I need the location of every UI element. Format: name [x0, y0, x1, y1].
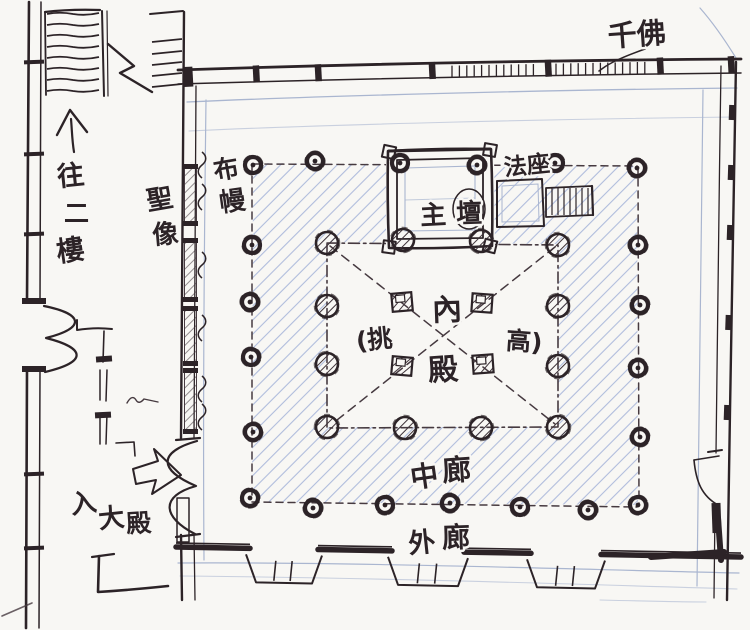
column-core [398, 161, 403, 166]
label-dharma-seat: 法座 [503, 150, 552, 182]
stair-tread [152, 84, 182, 87]
column [316, 353, 338, 375]
statue-niche [185, 242, 197, 298]
wall-post [545, 60, 552, 77]
stair-tread [152, 51, 182, 54]
column [316, 232, 338, 254]
column-core [636, 503, 641, 508]
stair-tread [47, 90, 99, 92]
label-main-altar: 壇 [456, 198, 483, 230]
column [547, 295, 569, 317]
stair-tread [47, 46, 99, 48]
label-raised-ceiling: (挑 [355, 323, 394, 356]
column-core [518, 505, 523, 510]
threshold-step [388, 557, 468, 586]
column-core [249, 355, 254, 360]
up-arrow-to-second-floor [57, 110, 87, 152]
label-to-second-floor: 往 [56, 159, 86, 194]
square-column-inner [477, 357, 486, 365]
statue-niche [185, 372, 197, 430]
hall-top-wall [178, 56, 741, 87]
stair-treads-lower [47, 13, 99, 92]
column-core [638, 435, 643, 440]
niche-cap [183, 164, 198, 169]
wall-post [728, 165, 735, 180]
column [547, 355, 569, 377]
label-qianfo: 千佛 [607, 16, 667, 54]
label-middle-corridor: 中 [408, 458, 440, 495]
stair-tread [152, 62, 182, 65]
column [547, 234, 569, 256]
label-to-second-floor: 二 [64, 199, 89, 228]
sacred-statue-niches [183, 164, 198, 434]
dimension-scribble [127, 398, 158, 403]
label-curtain: 布 [211, 153, 241, 186]
niche-cap [183, 238, 198, 243]
niche-cap [183, 306, 198, 311]
wall-segment-edge [464, 548, 531, 549]
wall-segment-edge [318, 546, 392, 547]
stair-tread [47, 68, 99, 70]
niche-cap [183, 361, 198, 366]
label-raised-ceiling: 高) [505, 326, 543, 357]
column [316, 295, 338, 317]
column [392, 229, 414, 251]
label-enter-main-hall: 大 [97, 503, 126, 536]
column-core [248, 300, 253, 305]
square-column-inner [476, 296, 485, 304]
hall-left-wall [168, 12, 200, 600]
column-core [250, 243, 255, 248]
label-inner-hall: 內 [431, 292, 462, 328]
stair-tread [152, 73, 182, 76]
column-core [636, 366, 641, 371]
column-core [586, 508, 591, 513]
column [394, 417, 416, 439]
wall-post [724, 405, 731, 420]
niche-cap [183, 297, 198, 302]
wall-post [725, 315, 732, 330]
label-outer-corridor: 外 [407, 527, 437, 561]
column-core [251, 430, 256, 435]
column-core [383, 503, 388, 508]
floor-plan-sketch: 千佛 往 二 樓 聖 像 布 幔 主 壇 法座 內 殿 (挑 高) 中 廊 外 … [0, 0, 750, 630]
label-sacred-statues: 聖 [144, 183, 175, 217]
wall-segment [176, 547, 250, 548]
statue-niche [185, 310, 197, 362]
niche-cap [183, 368, 198, 373]
staircase [45, 10, 183, 96]
column-core [313, 159, 318, 164]
label-main-altar: 主 [419, 200, 447, 231]
exterior-left-wall [2, 2, 77, 628]
wall-segment-edge [176, 543, 250, 544]
wall-post [429, 62, 436, 79]
stair-tread [47, 57, 99, 59]
column-core [635, 166, 640, 171]
stair-tread [47, 79, 99, 81]
column-core [311, 506, 316, 511]
column-core [638, 303, 643, 308]
column-core [475, 163, 480, 168]
square-column-inner [395, 295, 405, 303]
stair-tread [152, 39, 182, 42]
label-enter-main-hall: 入 [69, 487, 99, 520]
wall-post [729, 105, 736, 120]
entrance-arrow [116, 442, 181, 494]
wall-post [727, 225, 734, 240]
wall-post [657, 57, 664, 74]
column [470, 230, 492, 252]
curtain-squiggle [198, 376, 206, 402]
column-core [448, 501, 453, 506]
threshold-step [246, 554, 322, 583]
curtain-squiggle [198, 315, 206, 341]
square-column-inner [396, 359, 406, 367]
label-curtain: 幔 [218, 185, 249, 218]
column [470, 417, 492, 439]
threshold-tick [290, 561, 292, 581]
hall-right-wall [651, 62, 736, 600]
niche-cap [183, 429, 198, 434]
column [547, 416, 569, 438]
wall-post [728, 56, 735, 73]
stair-tread [47, 35, 99, 37]
label-middle-corridor: 廊 [441, 452, 472, 488]
wall-post [183, 67, 193, 87]
stair-tread [47, 13, 99, 15]
corner-wall [98, 556, 168, 592]
column-core [553, 161, 558, 166]
curtain-squiggle [198, 404, 206, 430]
wall-segment [318, 550, 392, 551]
label-inner-hall: 殿 [427, 352, 459, 389]
stair-tread [47, 24, 99, 26]
statue-niche [185, 168, 197, 222]
niche-cap [183, 221, 198, 226]
column [316, 416, 338, 438]
column-core [636, 243, 641, 248]
wall-post [315, 64, 322, 81]
column-core [251, 163, 256, 168]
entrance-door-swing [168, 441, 197, 534]
corridor-partition [77, 320, 168, 592]
wall-segment [464, 552, 531, 553]
wall-post [253, 65, 260, 82]
exterior-door-swing [44, 306, 77, 372]
stair-break-line [108, 44, 152, 92]
label-to-second-floor: 樓 [54, 232, 86, 269]
column-core [248, 496, 253, 501]
stair-treads-upper [152, 39, 182, 87]
label-outer-corridor: 廊 [442, 521, 471, 555]
label-enter-main-hall: 殿 [124, 508, 153, 539]
sketch-page: 千佛 往 二 樓 聖 像 布 幔 主 壇 法座 內 殿 (挑 高) 中 廊 外 … [0, 0, 750, 630]
label-sacred-statues: 像 [151, 219, 181, 251]
